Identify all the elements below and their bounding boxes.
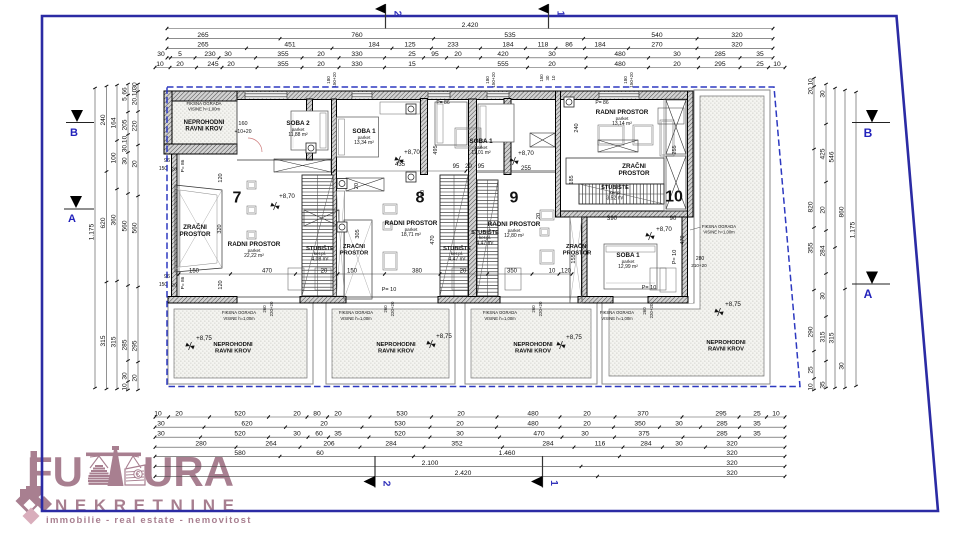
svg-text:320: 320 [726,450,737,457]
svg-text:285: 285 [716,431,727,438]
svg-text:284: 284 [385,441,396,448]
svg-text:95: 95 [478,164,485,170]
svg-text:315: 315 [100,335,107,346]
svg-text:VISINE h=1,00m: VISINE h=1,00m [340,316,372,321]
svg-text:30: 30 [157,51,165,58]
svg-text:A: A [864,287,873,301]
svg-text:180: 180 [326,76,331,84]
svg-text:220+20: 220+20 [538,301,543,316]
svg-text:540: 540 [651,32,662,39]
svg-text:480: 480 [527,421,538,428]
svg-text:20: 20 [673,61,681,68]
svg-text:20: 20 [456,421,464,428]
svg-text:355: 355 [277,51,288,58]
svg-text:FIKSNA OGRADA: FIKSNA OGRADA [186,101,221,106]
svg-text:4,08 m²: 4,08 m² [312,256,329,262]
svg-text:150+20: 150+20 [629,72,634,88]
svg-text:10: 10 [121,383,128,391]
svg-text:1.175: 1.175 [849,221,856,238]
svg-text:20: 20 [317,61,325,68]
svg-text:560: 560 [131,222,138,233]
svg-text:120: 120 [561,268,572,274]
svg-text:120: 120 [218,280,224,289]
svg-text:35: 35 [334,431,342,438]
svg-text:125: 125 [404,42,415,49]
svg-text:FIKSNA OGRADA: FIKSNA OGRADA [222,310,256,315]
svg-text:160: 160 [238,121,247,127]
svg-text:330: 330 [351,61,362,68]
svg-text:RAVNI KROV: RAVNI KROV [708,346,744,352]
svg-text:P= 86: P= 86 [436,100,449,106]
svg-text:2.420: 2.420 [455,470,472,477]
svg-text:20: 20 [583,410,591,417]
svg-text:280: 280 [696,256,705,262]
svg-text:FIKSNA OGRADA: FIKSNA OGRADA [702,224,736,229]
svg-text:13,34 m²: 13,34 m² [354,140,374,146]
svg-text:P= 10: P= 10 [382,287,397,293]
svg-text:20: 20 [334,410,342,417]
svg-text:495: 495 [433,145,439,154]
svg-text:760: 760 [351,32,362,39]
svg-text:520: 520 [394,431,405,438]
svg-text:11,88 m²: 11,88 m² [288,132,308,138]
svg-text:20: 20 [131,160,138,168]
svg-text:315: 315 [819,331,826,342]
svg-text:20: 20 [460,268,467,274]
svg-text:220+20: 220+20 [390,301,395,316]
svg-text:NEPROHODNI: NEPROHODNI [213,342,253,348]
svg-text:285: 285 [121,339,128,350]
svg-text:P= 86: P= 86 [595,100,608,106]
svg-text:66: 66 [121,87,128,95]
svg-text:25: 25 [756,61,764,68]
svg-text:470: 470 [533,431,544,438]
svg-text:PROSTOR: PROSTOR [179,231,210,238]
svg-text:PROSTOR: PROSTOR [618,170,649,177]
svg-text:1: 1 [555,11,567,17]
svg-text:295: 295 [714,61,725,68]
svg-text:150+20: 150+20 [491,72,496,88]
svg-text:295: 295 [131,340,138,351]
svg-text:18,71 m²: 18,71 m² [401,232,421,238]
svg-text:PROSTOR: PROSTOR [563,250,592,256]
svg-text:350: 350 [507,268,518,274]
svg-text:10: 10 [772,410,780,417]
svg-text:435: 435 [395,162,406,168]
svg-text:530: 530 [394,421,405,428]
svg-text:116: 116 [595,441,606,448]
svg-text:284: 284 [819,245,826,256]
svg-text:VISINE h=1,00m: VISINE h=1,00m [601,316,633,321]
svg-text:320: 320 [726,441,737,448]
svg-text:35: 35 [756,51,764,58]
svg-text:546: 546 [828,151,835,162]
svg-text:30: 30 [224,51,232,58]
svg-text:270: 270 [651,42,662,49]
svg-text:+8,75: +8,75 [566,334,582,341]
svg-text:184: 184 [594,42,605,49]
svg-text:620: 620 [100,217,107,228]
svg-text:80: 80 [313,410,321,417]
svg-text:13,14 m²: 13,14 m² [612,121,632,127]
svg-text:265: 265 [197,42,208,49]
svg-text:20: 20 [131,374,138,382]
svg-text:90: 90 [670,216,677,222]
svg-text:860: 860 [838,206,845,217]
svg-text:184: 184 [502,42,513,49]
svg-text:150: 150 [347,268,358,274]
svg-text:35: 35 [819,381,826,389]
svg-text:520: 520 [234,410,245,417]
svg-text:535: 535 [504,32,515,39]
svg-text:B: B [70,127,78,139]
svg-text:+8,70: +8,70 [656,226,672,233]
svg-text:370: 370 [637,410,648,417]
svg-text:30: 30 [157,421,165,428]
svg-text:355: 355 [277,61,288,68]
svg-text:10: 10 [807,78,814,86]
svg-text:20: 20 [819,206,826,214]
svg-text:480: 480 [614,51,625,58]
svg-text:95: 95 [431,51,439,58]
svg-text:5: 5 [121,97,128,101]
svg-text:120: 120 [218,173,224,182]
svg-text:560: 560 [121,220,128,231]
svg-text:20: 20 [457,410,465,417]
svg-text:20: 20 [420,190,426,196]
svg-text:470: 470 [680,235,686,244]
svg-text:4,47 m²: 4,47 m² [449,256,466,262]
svg-text:+8,75: +8,75 [725,301,741,308]
svg-text:284: 284 [542,441,553,448]
svg-text:260: 260 [531,305,536,313]
svg-text:280: 280 [195,441,206,448]
svg-text:30: 30 [121,157,128,165]
svg-text:25: 25 [753,410,761,417]
svg-text:530: 530 [396,410,407,417]
svg-text:2.100: 2.100 [422,460,439,467]
svg-text:265: 265 [197,32,208,39]
svg-text:285: 285 [714,51,725,58]
svg-text:VISINE h=1,00m: VISINE h=1,00m [484,316,516,321]
svg-text:260: 260 [383,305,388,313]
svg-text:4,47 m²: 4,47 m² [477,240,494,246]
svg-text:7: 7 [233,189,242,206]
svg-text:FIKSNA OGRADA: FIKSNA OGRADA [600,310,634,315]
svg-text:315: 315 [110,336,117,347]
svg-text:30: 30 [131,82,138,90]
svg-text:FIKSNA OGRADA: FIKSNA OGRADA [339,310,373,315]
svg-text:240: 240 [100,114,107,125]
svg-text:470: 470 [262,268,273,274]
svg-text:20: 20 [536,213,542,219]
svg-text:RAVNI KROV: RAVNI KROV [215,348,251,354]
svg-text:30: 30 [581,431,589,438]
svg-text:10: 10 [156,61,164,68]
svg-text:3,52 m²: 3,52 m² [607,195,624,201]
svg-text:10: 10 [807,383,814,391]
svg-text:820: 820 [807,201,814,212]
svg-text:1: 1 [548,480,560,486]
svg-text:305: 305 [355,229,361,238]
svg-text:320: 320 [217,224,223,233]
svg-text:PROSTOR: PROSTOR [340,250,369,256]
svg-text:20: 20 [354,183,360,189]
svg-text:150+20: 150+20 [332,72,337,88]
svg-text:5: 5 [178,51,182,58]
svg-text:620: 620 [241,421,252,428]
svg-text:€: € [136,469,141,479]
svg-text:35: 35 [753,421,761,428]
svg-text:2.420: 2.420 [462,22,479,29]
svg-text:320: 320 [731,32,742,39]
svg-text:240: 240 [574,123,580,132]
svg-text:1.175: 1.175 [88,223,95,240]
svg-text:+8,70: +8,70 [404,149,420,156]
svg-text:255: 255 [521,166,532,172]
svg-text:20: 20 [321,268,328,274]
svg-text:30: 30 [545,75,550,80]
svg-text:220+20: 220+20 [649,303,654,318]
svg-text:20: 20 [293,410,301,417]
svg-text:220: 220 [131,120,138,131]
svg-text:+8,75: +8,75 [196,335,212,342]
svg-text:150: 150 [159,282,168,288]
svg-text:P= 10: P= 10 [642,285,657,291]
svg-text:+8,70: +8,70 [279,193,295,200]
svg-text:10: 10 [549,268,556,274]
svg-text:184: 184 [368,42,379,49]
svg-text:VISINE h=1,00m: VISINE h=1,00m [188,107,221,112]
svg-text:25: 25 [807,366,814,374]
svg-text:470: 470 [430,235,436,244]
svg-text:390: 390 [607,216,618,222]
svg-text:180: 180 [485,76,490,84]
svg-text:150: 150 [159,166,168,172]
svg-text:20: 20 [454,51,462,58]
svg-text:NEPROHODNI: NEPROHODNI [513,342,553,348]
svg-text:9: 9 [510,189,519,206]
svg-text:320: 320 [726,470,737,477]
svg-text:30: 30 [293,431,301,438]
svg-text:100: 100 [110,152,117,163]
svg-text:320: 320 [726,460,737,467]
svg-text:RAVNI KROV: RAVNI KROV [378,348,414,354]
svg-text:35: 35 [753,431,761,438]
svg-text:20: 20 [465,164,472,170]
svg-text:30: 30 [838,362,845,370]
svg-text:210+20: 210+20 [691,263,707,268]
svg-text:480: 480 [527,410,538,417]
svg-text:180: 180 [623,76,628,84]
svg-text:20: 20 [171,283,177,288]
svg-text:20,10: 20,10 [131,88,138,105]
svg-text:12,99 m²: 12,99 m² [618,264,638,270]
svg-text:30: 30 [157,431,165,438]
svg-text:60: 60 [315,431,323,438]
svg-text:164: 164 [110,117,117,128]
svg-text:10: 10 [551,75,556,80]
svg-text:290: 290 [807,326,814,337]
svg-text:285: 285 [716,421,727,428]
svg-text:VISINE h=1,00m: VISINE h=1,00m [703,230,735,235]
svg-text:A: A [68,213,76,225]
svg-text:375: 375 [638,431,649,438]
svg-text:360: 360 [110,214,117,225]
svg-text:RAVNI KROV: RAVNI KROV [515,348,551,354]
svg-text:205: 205 [121,119,128,130]
svg-text:11,01 m²: 11,01 m² [471,150,491,156]
svg-text:260: 260 [262,305,267,313]
svg-text:20: 20 [317,51,325,58]
svg-text:ZRAČNI: ZRAČNI [622,161,646,170]
svg-text:118: 118 [538,42,549,49]
svg-text:60: 60 [316,450,324,457]
svg-text:B: B [864,126,873,140]
svg-text:+8,75: +8,75 [436,333,452,340]
svg-text:155: 155 [571,254,577,263]
svg-text:P= 10: P= 10 [672,250,678,265]
svg-text:NEPROHODNI: NEPROHODNI [376,342,416,348]
svg-text:NEPROHODNI: NEPROHODNI [184,120,225,126]
svg-text:10: 10 [773,61,781,68]
svg-text:425: 425 [819,148,826,159]
svg-text:520: 520 [234,431,245,438]
svg-text:30: 30 [548,51,556,58]
svg-text:352: 352 [451,441,462,448]
svg-text:+10+20: +10+20 [235,129,252,135]
svg-text:350: 350 [634,421,645,428]
svg-text:264: 264 [265,441,276,448]
svg-text:20: 20 [807,87,814,95]
svg-text:20: 20 [171,167,177,172]
svg-text:20: 20 [320,421,328,428]
svg-text:30: 30 [673,51,681,58]
svg-text:15: 15 [408,61,416,68]
svg-text:230: 230 [204,51,215,58]
svg-text:20: 20 [548,61,556,68]
svg-text:30: 30 [819,90,826,98]
svg-text:30: 30 [675,441,683,448]
svg-text:10: 10 [665,189,683,206]
svg-text:315: 315 [828,332,835,343]
svg-text:30,10: 30,10 [121,135,128,152]
svg-text:25: 25 [408,51,416,58]
svg-text:+8,70: +8,70 [518,150,534,157]
svg-text:580: 580 [234,450,245,457]
svg-text:320: 320 [731,42,742,49]
svg-text:FIKSNA OGRADA: FIKSNA OGRADA [483,310,517,315]
svg-text:10: 10 [154,410,162,417]
svg-text:295: 295 [715,410,726,417]
svg-text:220+20: 220+20 [269,301,274,316]
svg-text:ZRAČNI: ZRAČNI [183,222,207,231]
svg-text:ZRAČNI: ZRAČNI [566,243,588,250]
svg-text:P= 86: P= 86 [180,276,186,289]
svg-text:22,22 m²: 22,22 m² [244,253,264,259]
svg-text:420: 420 [497,51,508,58]
svg-text:95: 95 [453,164,460,170]
svg-text:ZRAČNI: ZRAČNI [343,243,365,250]
svg-text:NEPROHODNI: NEPROHODNI [706,340,746,346]
svg-text:355: 355 [807,242,814,253]
svg-text:330: 330 [351,51,362,58]
svg-text:VISINE h=1,00m: VISINE h=1,00m [223,316,255,321]
svg-text:20: 20 [583,421,591,428]
svg-text:206: 206 [323,441,334,448]
svg-text:RAVNI KROV: RAVNI KROV [185,127,222,133]
svg-text:86: 86 [565,42,573,49]
svg-text:150: 150 [539,74,544,82]
svg-text:30: 30 [121,372,128,380]
svg-text:185: 185 [569,175,575,184]
svg-text:P= 86: P= 86 [180,159,186,172]
svg-text:451: 451 [284,42,295,49]
svg-text:2: 2 [381,481,393,487]
svg-text:30: 30 [456,431,464,438]
svg-text:20: 20 [227,61,235,68]
svg-text:284: 284 [640,441,651,448]
svg-text:1.460: 1.460 [499,450,516,457]
svg-text:30: 30 [675,421,683,428]
svg-text:2: 2 [392,11,404,17]
svg-text:480: 480 [614,61,625,68]
svg-text:245: 245 [207,61,218,68]
svg-text:380: 380 [412,268,423,274]
svg-text:12,80 m²: 12,80 m² [504,233,524,239]
svg-text:20: 20 [175,410,183,417]
svg-text:150: 150 [189,268,200,274]
svg-text:immobilie - real estate - nemo: immobilie - real estate - nemovitost [46,515,252,526]
svg-text:20: 20 [176,61,184,68]
svg-text:255: 255 [672,145,678,154]
svg-text:30: 30 [819,292,826,300]
svg-text:555: 555 [497,61,508,68]
svg-text:233: 233 [447,42,458,49]
svg-text:260: 260 [642,307,647,315]
